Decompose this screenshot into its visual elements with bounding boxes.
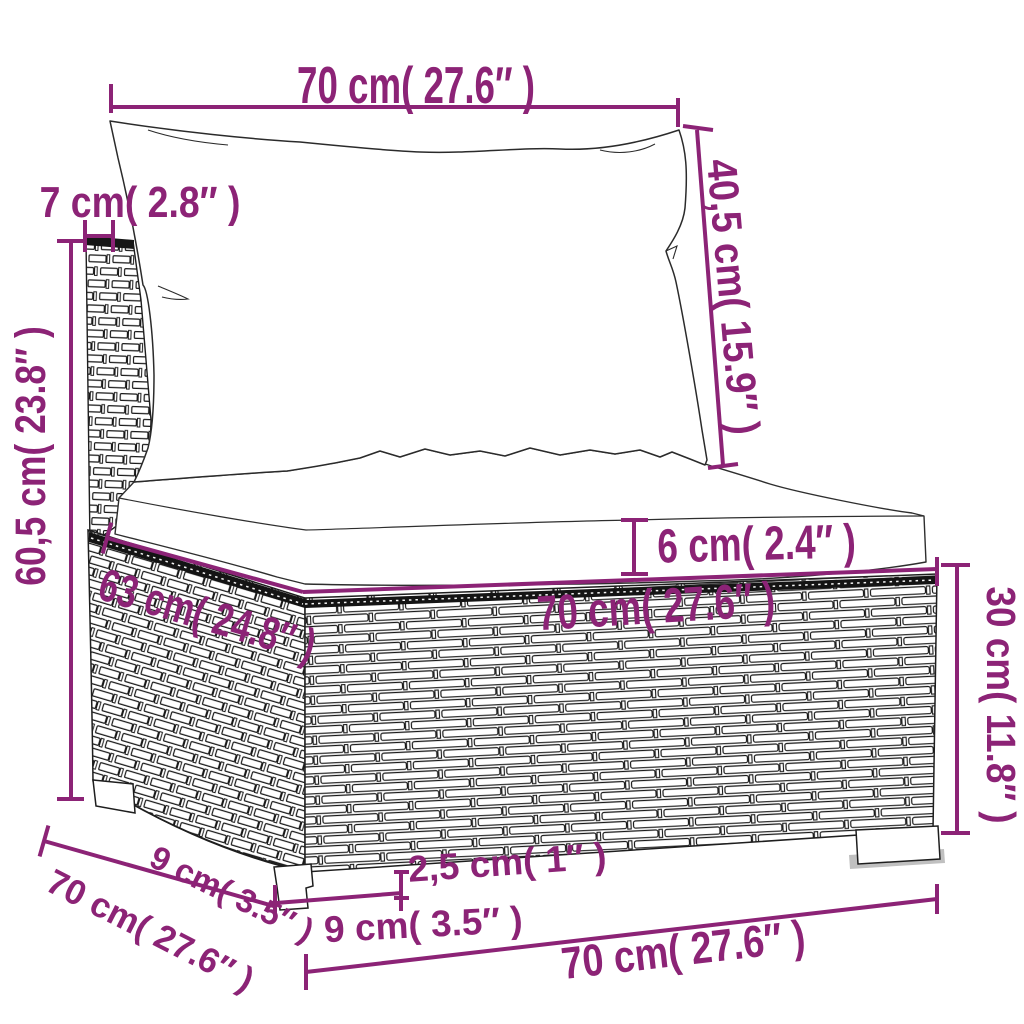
svg-text:60,5 cm( 23.8″ ): 60,5 cm( 23.8″ ): [8, 326, 55, 586]
svg-text:6 cm( 2.4″ ): 6 cm( 2.4″ ): [657, 515, 857, 574]
svg-text:70 cm( 27.6″ ): 70 cm( 27.6″ ): [297, 56, 535, 115]
svg-text:7 cm( 2.8″ ): 7 cm( 2.8″ ): [40, 177, 241, 227]
svg-text:30 cm( 11.8″ ): 30 cm( 11.8″ ): [978, 586, 1023, 823]
